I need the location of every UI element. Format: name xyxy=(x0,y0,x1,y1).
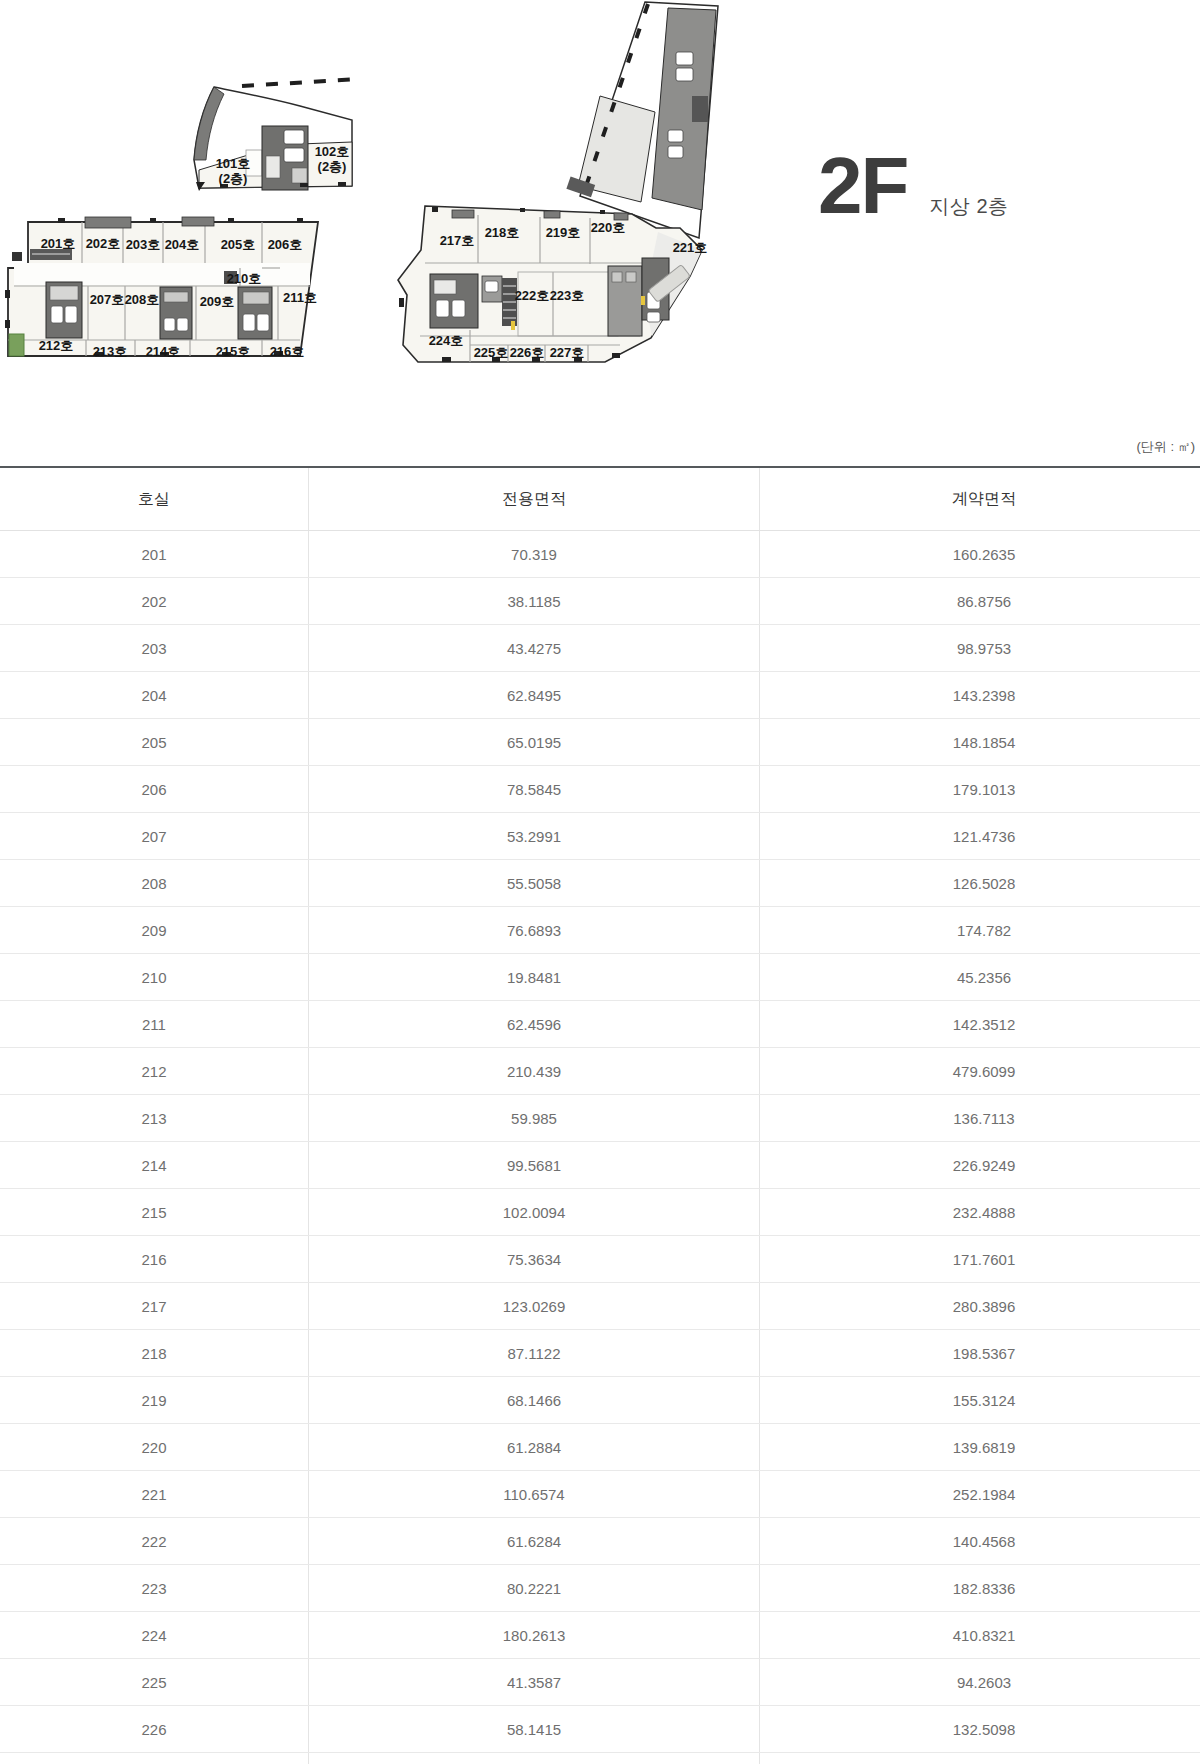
fixture xyxy=(177,318,188,331)
cell-room: 220 xyxy=(0,1424,309,1471)
table-row: 21162.4596142.3512 xyxy=(0,1001,1200,1048)
balcony-block xyxy=(614,213,628,220)
cell-exclusive-area: 62.4596 xyxy=(309,1001,760,1048)
table-row: 221110.6574252.1984 xyxy=(0,1471,1200,1518)
table-row: 215102.0094232.4888 xyxy=(0,1189,1200,1236)
cell-contract-area: 140.4568 xyxy=(760,1518,1200,1565)
cell-room: 207 xyxy=(0,813,309,860)
cell-contract-area: 280.3896 xyxy=(760,1283,1200,1330)
cell-exclusive-area: 61.2884 xyxy=(309,1424,760,1471)
cell-exclusive-area: 102.0094 xyxy=(309,1189,760,1236)
room-label: 219호 xyxy=(546,225,581,240)
table-row: 21499.5681226.9249 xyxy=(0,1142,1200,1189)
cell-room: 219 xyxy=(0,1377,309,1424)
wall-tick xyxy=(600,210,605,214)
room-label: (2층) xyxy=(318,159,347,174)
wall-tick xyxy=(520,208,525,212)
floorplan-right-wing xyxy=(398,2,718,362)
cell-contract-area: 86.8756 xyxy=(760,578,1200,625)
cell-contract-area: 226.9249 xyxy=(760,1142,1200,1189)
cell-room: 217 xyxy=(0,1283,309,1330)
header-room: 호실 xyxy=(0,467,309,531)
room-label: 206호 xyxy=(268,237,303,252)
wall-block xyxy=(12,252,22,261)
cell-room: 205 xyxy=(0,719,309,766)
landscape-patch xyxy=(9,334,24,356)
room-label: (2층) xyxy=(219,171,248,186)
wall-tick xyxy=(338,182,346,186)
cell-contract-area: 198.5367 xyxy=(760,1330,1200,1377)
cell-room: 206 xyxy=(0,766,309,813)
fixture xyxy=(50,286,78,300)
fixture xyxy=(676,68,693,81)
fixture xyxy=(243,292,269,304)
fixture xyxy=(676,52,693,65)
table-row: 22541.358794.2603 xyxy=(0,1659,1200,1706)
area-table: 호실 전용면적 계약면적 20170.319160.263520238.1185… xyxy=(0,466,1200,1764)
table-row: 217123.0269280.3896 xyxy=(0,1283,1200,1330)
area-table-head: 호실 전용면적 계약면적 xyxy=(0,467,1200,531)
cell-contract-area: 135.7028 xyxy=(760,1753,1200,1764)
room-label: 204호 xyxy=(165,237,200,252)
table-row: 21887.1122198.5367 xyxy=(0,1330,1200,1377)
room-label: 212호 xyxy=(39,338,74,353)
fixture xyxy=(626,272,636,282)
fixture xyxy=(284,148,304,162)
cell-contract-area: 143.2398 xyxy=(760,672,1200,719)
cell-exclusive-area: 38.1185 xyxy=(309,578,760,625)
shaft-block xyxy=(692,96,708,122)
table-row: 21019.848145.2356 xyxy=(0,954,1200,1001)
room-label: 217호 xyxy=(440,233,475,248)
room-label: 218호 xyxy=(485,225,520,240)
cell-exclusive-area: 58.1415 xyxy=(309,1706,760,1753)
cell-exclusive-area: 19.8481 xyxy=(309,954,760,1001)
room-label: 223호 xyxy=(550,288,585,303)
room-label: 102호 xyxy=(315,144,350,159)
fixture xyxy=(485,281,498,292)
cell-exclusive-area: 99.5681 xyxy=(309,1142,760,1189)
table-row: 21359.985136.7113 xyxy=(0,1095,1200,1142)
room-label: 207호 xyxy=(90,292,125,307)
floorplan-canvas: 101호(2층)102호(2층) 201호202호203호204호205호206… xyxy=(0,0,1200,420)
room-label: 225호 xyxy=(474,345,509,360)
header-row: 호실 전용면적 계약면적 xyxy=(0,467,1200,531)
cell-contract-area: 45.2356 xyxy=(760,954,1200,1001)
wall-tick xyxy=(442,357,451,362)
room-label: 209호 xyxy=(200,294,235,309)
boundary-dashes xyxy=(242,79,360,86)
room-label: 213호 xyxy=(93,344,128,359)
room-label: 201호 xyxy=(41,236,76,251)
table-row: 20170.319160.2635 xyxy=(0,531,1200,578)
fixture xyxy=(292,168,307,183)
wall-tick xyxy=(300,183,308,187)
cell-exclusive-area: 76.6893 xyxy=(309,907,760,954)
fixture xyxy=(257,314,269,331)
cell-room: 216 xyxy=(0,1236,309,1283)
cell-exclusive-area: 62.8495 xyxy=(309,672,760,719)
table-row: 20462.8495143.2398 xyxy=(0,672,1200,719)
cell-contract-area: 136.7113 xyxy=(760,1095,1200,1142)
table-row: 212210.439479.6099 xyxy=(0,1048,1200,1095)
room-label: 202호 xyxy=(86,236,121,251)
cell-exclusive-area: 78.5845 xyxy=(309,766,760,813)
cell-room: 227 xyxy=(0,1753,309,1764)
cell-exclusive-area: 110.6574 xyxy=(309,1471,760,1518)
cell-exclusive-area: 43.4275 xyxy=(309,625,760,672)
fixture xyxy=(65,306,77,323)
cell-exclusive-area: 61.6284 xyxy=(309,1518,760,1565)
wall-tick xyxy=(5,320,10,328)
wall-tick xyxy=(150,218,156,222)
cell-exclusive-area: 55.5058 xyxy=(309,860,760,907)
cell-contract-area: 410.8321 xyxy=(760,1612,1200,1659)
cell-room: 221 xyxy=(0,1471,309,1518)
fixture xyxy=(51,306,63,323)
fixture xyxy=(668,130,683,142)
cell-exclusive-area: 59.985 xyxy=(309,1095,760,1142)
room-label: 224호 xyxy=(429,333,464,348)
unit-note: (단위 : ㎡) xyxy=(1137,438,1196,456)
cell-room: 208 xyxy=(0,860,309,907)
cell-room: 226 xyxy=(0,1706,309,1753)
cell-room: 211 xyxy=(0,1001,309,1048)
cell-exclusive-area: 123.0269 xyxy=(309,1283,760,1330)
cell-contract-area: 155.3124 xyxy=(760,1377,1200,1424)
room-label: 101호 xyxy=(216,156,251,171)
wall-tick xyxy=(612,353,620,358)
fixture xyxy=(452,300,465,317)
floor-title-code: 2F xyxy=(818,150,907,222)
cell-room: 202 xyxy=(0,578,309,625)
cell-room: 213 xyxy=(0,1095,309,1142)
cell-room: 224 xyxy=(0,1612,309,1659)
cell-exclusive-area: 68.1466 xyxy=(309,1377,760,1424)
fixture xyxy=(668,146,683,158)
cell-exclusive-area: 65.0195 xyxy=(309,719,760,766)
floor-title-desc: 지상 2층 xyxy=(929,193,1008,220)
table-row: 20753.2991121.4736 xyxy=(0,813,1200,860)
cell-exclusive-area: 180.2613 xyxy=(309,1612,760,1659)
table-row: 20343.427598.9753 xyxy=(0,625,1200,672)
cell-contract-area: 126.5028 xyxy=(760,860,1200,907)
cell-exclusive-area: 41.3587 xyxy=(309,1659,760,1706)
fixture xyxy=(284,130,304,144)
balcony-block xyxy=(544,211,560,218)
table-row: 20238.118586.8756 xyxy=(0,578,1200,625)
floor-title: 2F 지상 2층 xyxy=(818,150,1009,222)
cell-exclusive-area: 70.319 xyxy=(309,531,760,578)
table-row: 21675.3634171.7601 xyxy=(0,1236,1200,1283)
cell-contract-area: 232.4888 xyxy=(760,1189,1200,1236)
cell-contract-area: 160.2635 xyxy=(760,531,1200,578)
cell-room: 223 xyxy=(0,1565,309,1612)
room-label: 226호 xyxy=(510,345,545,360)
cell-exclusive-area: 75.3634 xyxy=(309,1236,760,1283)
wall-tick xyxy=(228,218,234,222)
cell-room: 203 xyxy=(0,625,309,672)
cell-exclusive-area: 210.439 xyxy=(309,1048,760,1095)
room-label: 211호 xyxy=(283,290,317,305)
cell-contract-area: 142.3512 xyxy=(760,1001,1200,1048)
fixture xyxy=(164,292,188,302)
cell-contract-area: 252.1984 xyxy=(760,1471,1200,1518)
room-label: 208호 xyxy=(125,292,160,307)
table-row: 22380.2221182.8336 xyxy=(0,1565,1200,1612)
table-row: 20855.5058126.5028 xyxy=(0,860,1200,907)
table-row: 22261.6284140.4568 xyxy=(0,1518,1200,1565)
balcony-block xyxy=(85,217,131,228)
cell-room: 212 xyxy=(0,1048,309,1095)
cell-contract-area: 182.8336 xyxy=(760,1565,1200,1612)
cell-contract-area: 94.2603 xyxy=(760,1659,1200,1706)
header-contract-area: 계약면적 xyxy=(760,467,1200,531)
table-row: 20976.6893174.782 xyxy=(0,907,1200,954)
table-row: 20678.5845179.1013 xyxy=(0,766,1200,813)
table-row: 20565.0195148.1854 xyxy=(0,719,1200,766)
table-row: 22658.1415132.5098 xyxy=(0,1706,1200,1753)
cell-contract-area: 171.7601 xyxy=(760,1236,1200,1283)
wall-tick xyxy=(58,218,65,223)
fixture xyxy=(266,156,280,178)
fixture xyxy=(434,280,456,294)
fixture xyxy=(243,314,255,331)
area-table-body: 20170.319160.263520238.118586.875620343.… xyxy=(0,531,1200,1764)
table-row: 22759.5425135.7028 xyxy=(0,1753,1200,1764)
fixture xyxy=(436,300,449,317)
cell-room: 210 xyxy=(0,954,309,1001)
cell-contract-area: 479.6099 xyxy=(760,1048,1200,1095)
cell-contract-area: 139.6819 xyxy=(760,1424,1200,1471)
room-label: 205호 xyxy=(221,237,256,252)
room-label: 227호 xyxy=(550,345,585,360)
cell-exclusive-area: 87.1122 xyxy=(309,1330,760,1377)
cell-contract-area: 148.1854 xyxy=(760,719,1200,766)
wall-tick xyxy=(297,218,303,222)
room-label: 203호 xyxy=(126,237,161,252)
accent-mark xyxy=(641,296,645,305)
cell-contract-area: 98.9753 xyxy=(760,625,1200,672)
cell-contract-area: 179.1013 xyxy=(760,766,1200,813)
balcony-block xyxy=(182,217,214,226)
balcony-block xyxy=(452,210,474,218)
cell-room: 214 xyxy=(0,1142,309,1189)
cell-room: 201 xyxy=(0,531,309,578)
cell-contract-area: 174.782 xyxy=(760,907,1200,954)
cell-exclusive-area: 80.2221 xyxy=(309,1565,760,1612)
wall-tick xyxy=(432,207,438,212)
fixture xyxy=(164,318,175,331)
room-label: 215호 xyxy=(216,344,251,359)
cell-exclusive-area: 59.5425 xyxy=(309,1753,760,1764)
wall-tick xyxy=(5,290,10,298)
room-label: 214호 xyxy=(146,344,181,359)
cell-contract-area: 121.4736 xyxy=(760,813,1200,860)
cell-room: 222 xyxy=(0,1518,309,1565)
table-row: 22061.2884139.6819 xyxy=(0,1424,1200,1471)
fixture xyxy=(612,272,622,282)
cell-room: 215 xyxy=(0,1189,309,1236)
cell-room: 209 xyxy=(0,907,309,954)
room-label: 216호 xyxy=(270,344,305,359)
room-label: 220호 xyxy=(591,220,626,235)
cell-room: 225 xyxy=(0,1659,309,1706)
wall-tick xyxy=(399,298,404,307)
table-row: 21968.1466155.3124 xyxy=(0,1377,1200,1424)
cell-exclusive-area: 53.2991 xyxy=(309,813,760,860)
room-label: 221호 xyxy=(673,240,708,255)
accent-mark xyxy=(511,321,515,330)
cell-contract-area: 132.5098 xyxy=(760,1706,1200,1753)
header-exclusive-area: 전용면적 xyxy=(309,467,760,531)
cell-room: 218 xyxy=(0,1330,309,1377)
cell-room: 204 xyxy=(0,672,309,719)
fixture xyxy=(647,312,660,322)
table-row: 224180.2613410.8321 xyxy=(0,1612,1200,1659)
room-label: 210호 xyxy=(227,271,262,286)
room-label: 222호 xyxy=(515,288,550,303)
